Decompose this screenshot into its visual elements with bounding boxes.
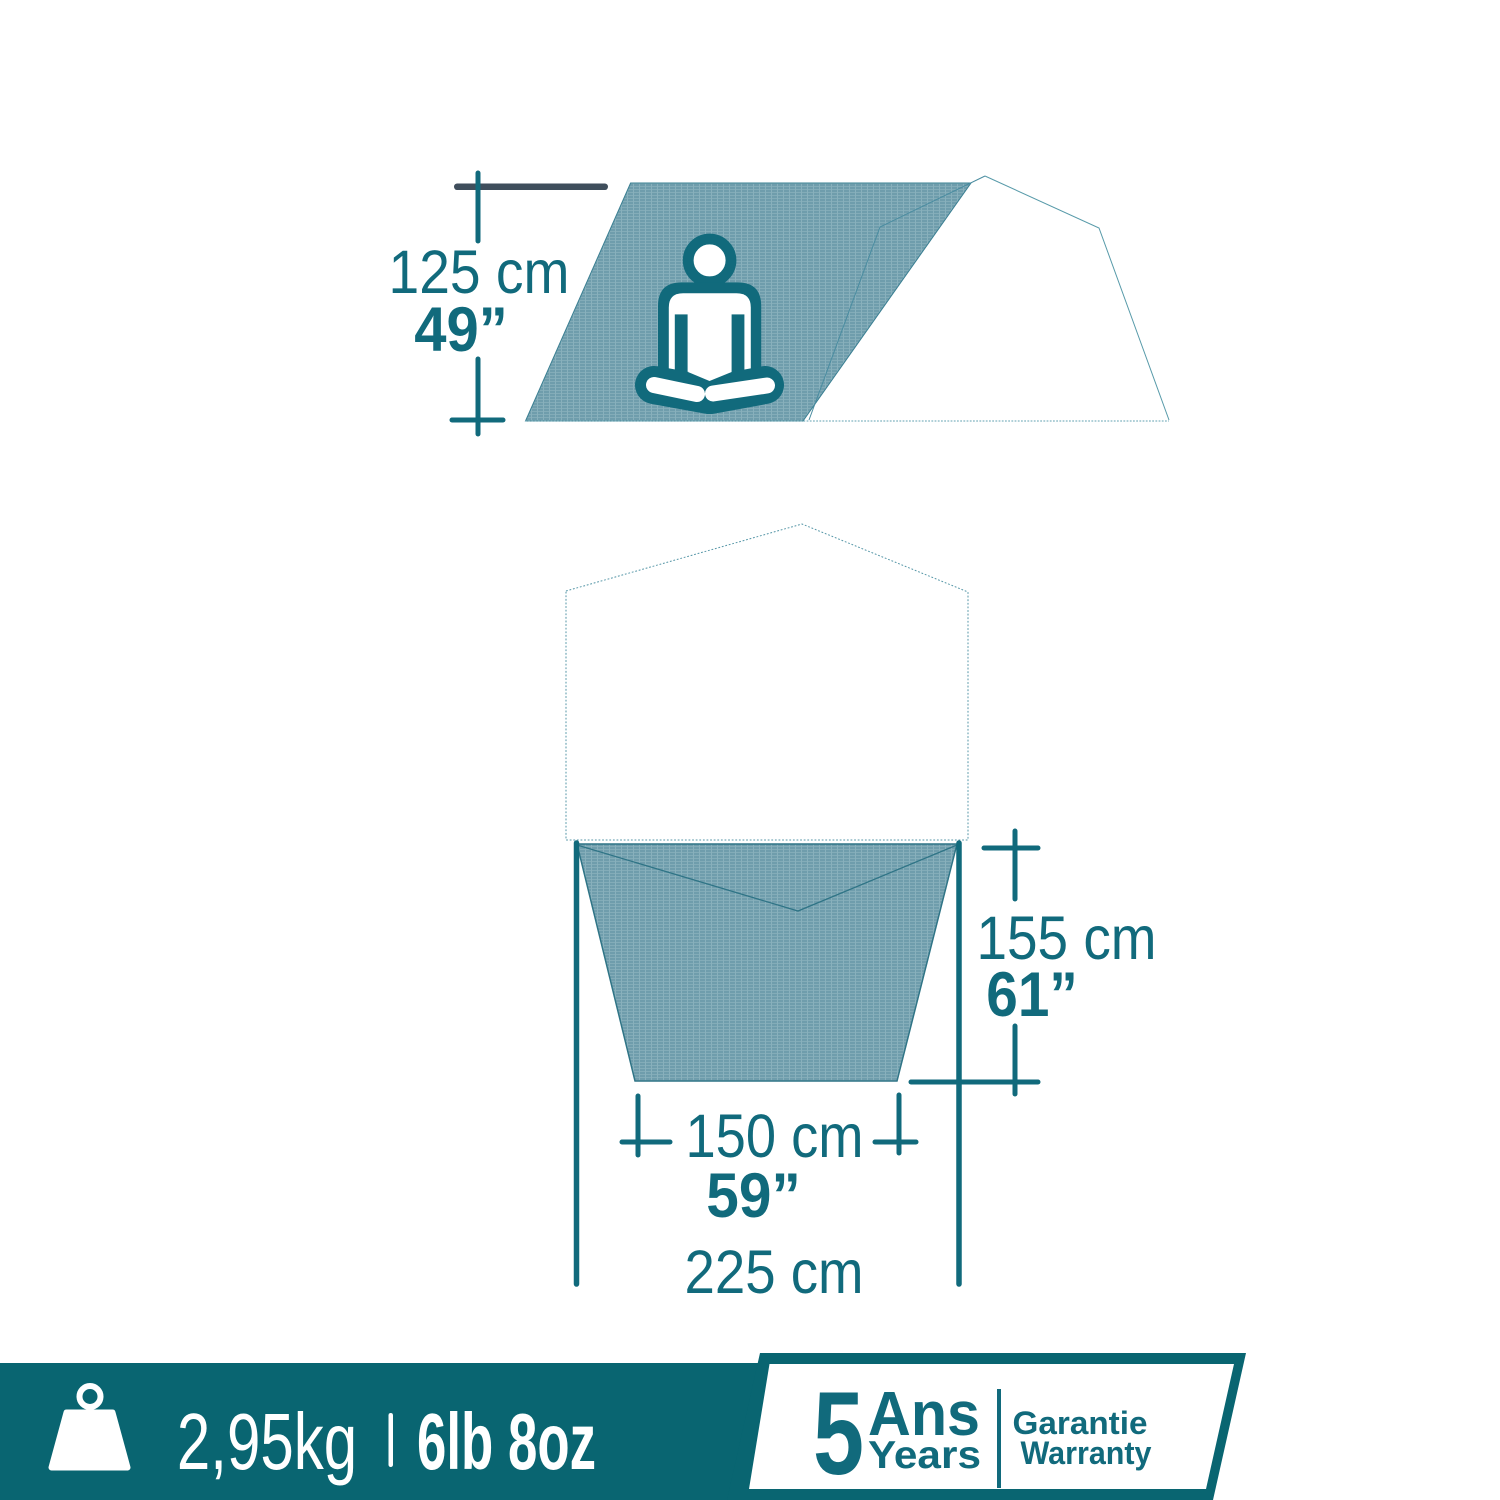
svg-text:61”: 61”: [986, 959, 1077, 1029]
svg-text:Warranty: Warranty: [1020, 1435, 1152, 1471]
svg-text:49”: 49”: [414, 294, 507, 365]
svg-text:Years: Years: [868, 1432, 981, 1476]
svg-text:59”: 59”: [706, 1160, 800, 1230]
svg-text:2,95kg: 2,95kg: [177, 1397, 357, 1486]
svg-text:225 cm: 225 cm: [684, 1239, 863, 1306]
svg-text:6lb 8oz: 6lb 8oz: [417, 1398, 596, 1487]
svg-text:5: 5: [813, 1368, 864, 1500]
